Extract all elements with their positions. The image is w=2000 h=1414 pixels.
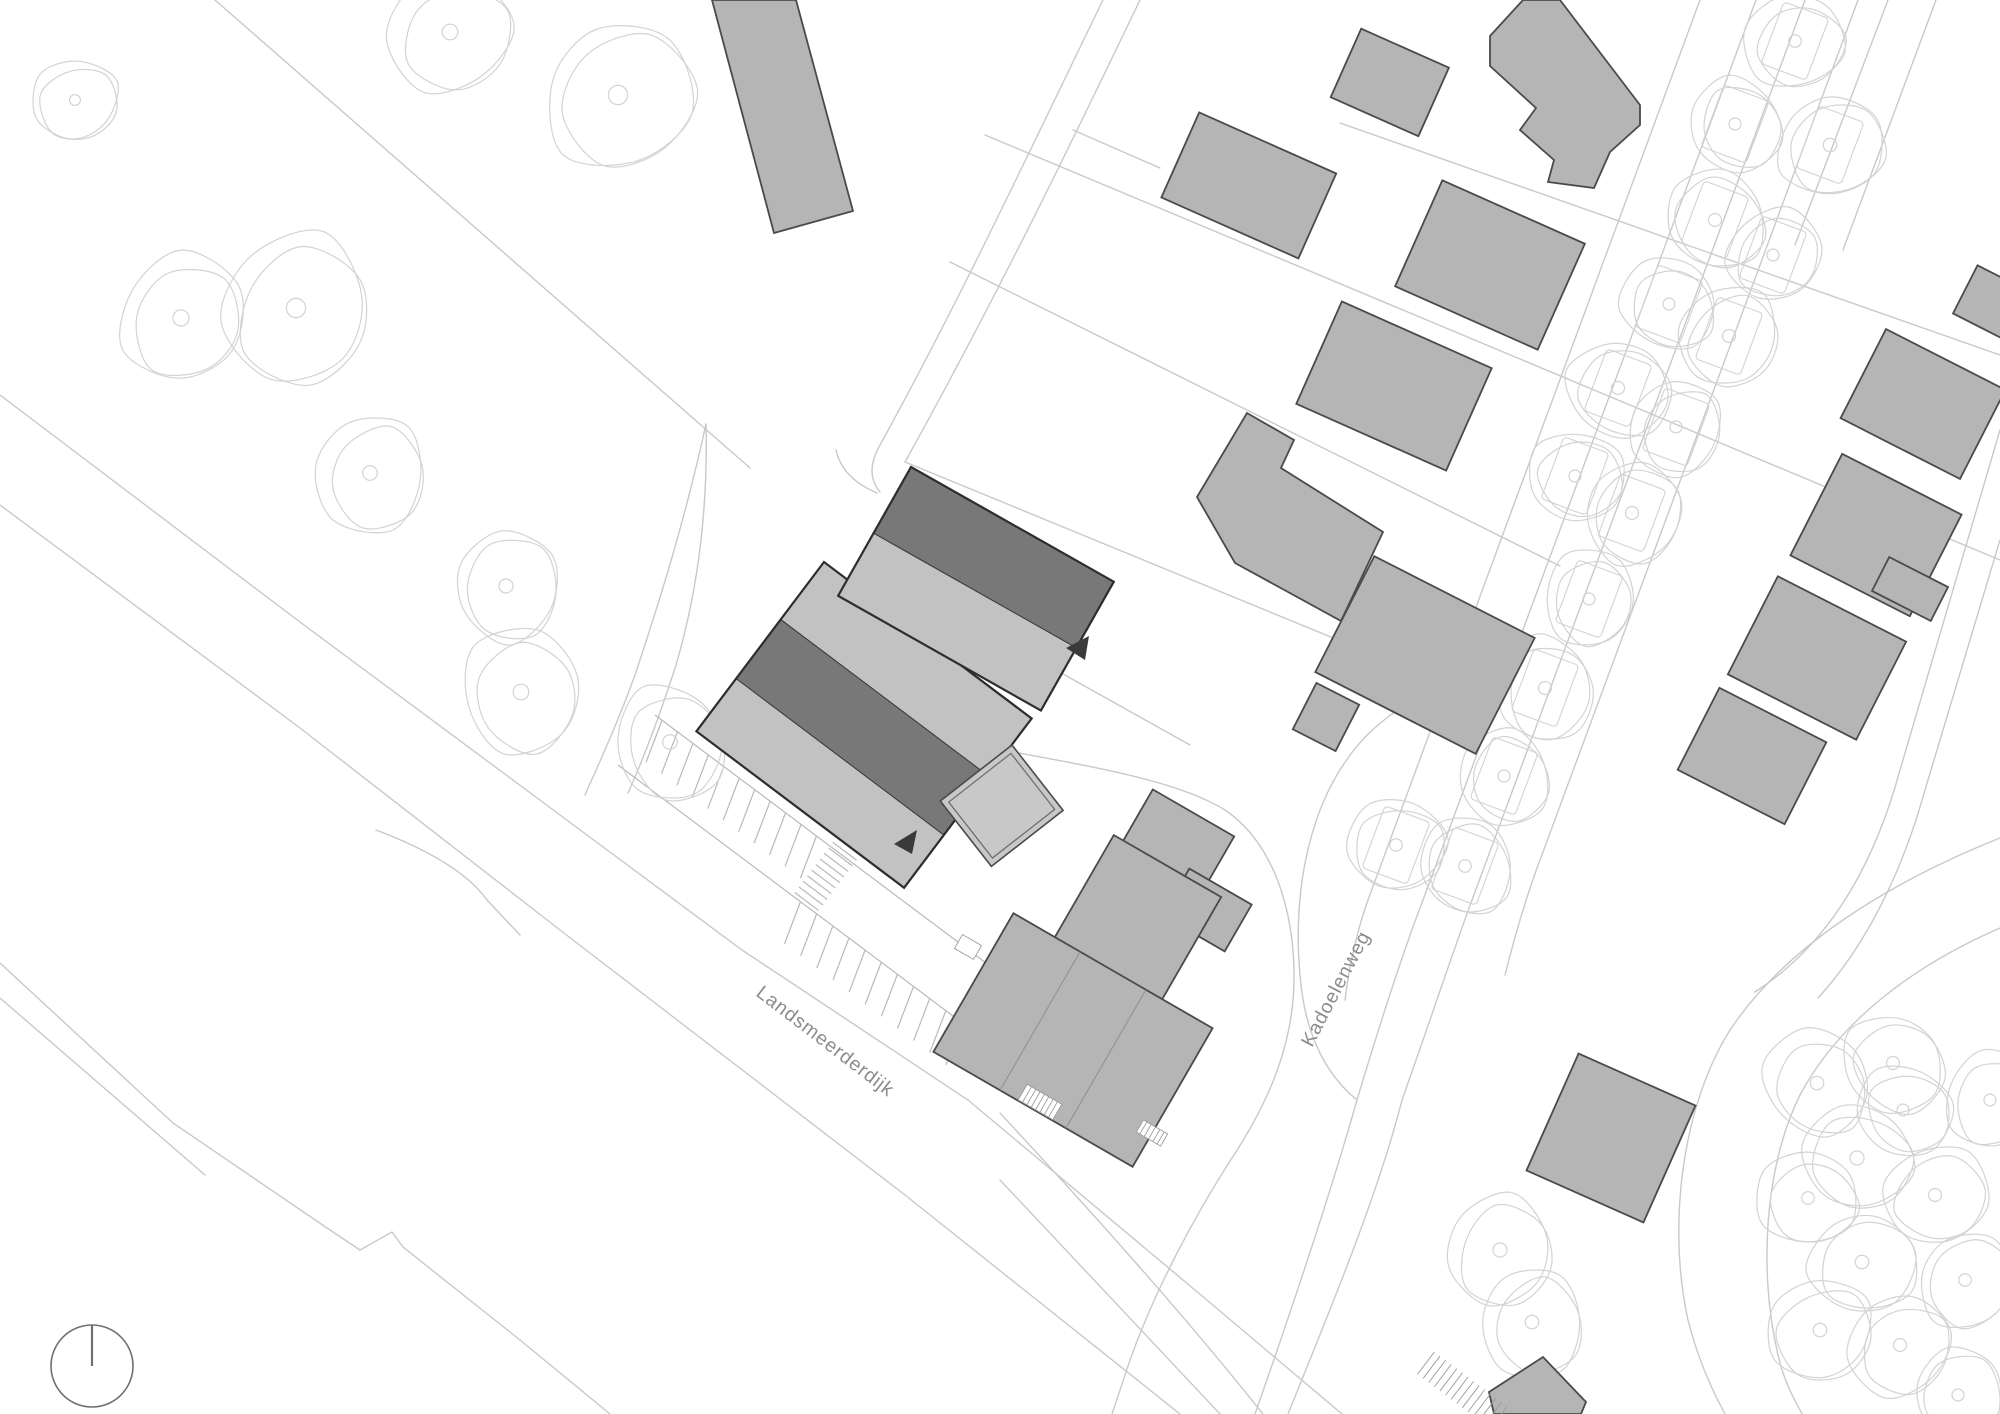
tree-canopy-icon <box>1612 382 1625 395</box>
tree-canopy-icon <box>1802 1192 1814 1204</box>
tree-canopy-icon <box>1429 824 1511 912</box>
tree-canopy-icon <box>1493 1243 1507 1257</box>
stair-hatch <box>954 935 981 960</box>
map-line <box>1795 0 1888 245</box>
hatch-stripe <box>1462 1385 1479 1407</box>
tree-canopy-icon <box>442 24 458 40</box>
tree-canopy-icon <box>1739 216 1807 295</box>
site-plan-drawing: Landsmeerderdijk Kadoelenweg <box>0 0 2000 1414</box>
parking-tick <box>849 950 865 992</box>
context-building <box>1953 265 2000 340</box>
tree-canopy-icon <box>1952 1389 1964 1401</box>
tree-canopy-icon <box>1525 1315 1539 1329</box>
parking-tick <box>914 999 930 1041</box>
tree-canopy-icon <box>221 230 363 381</box>
tree-canopy-icon <box>1704 87 1781 167</box>
stair-hatch <box>954 935 981 960</box>
crossing-stripe <box>803 881 827 899</box>
tree-canopy-icon <box>1796 106 1864 185</box>
tree-canopy-icon <box>1695 297 1763 376</box>
north-circle-icon <box>51 1325 133 1407</box>
hatch-stripe <box>1418 1352 1435 1374</box>
context-building <box>1161 112 1336 258</box>
tree-pit <box>1761 2 1829 81</box>
hatch-stripe <box>1451 1377 1468 1399</box>
map-line <box>1843 0 1936 250</box>
tree-canopy-icon <box>1813 1117 1914 1208</box>
tree-canopy-icon <box>1681 181 1749 260</box>
parking-tick <box>739 790 755 832</box>
tree-canopy-icon <box>1894 1339 1907 1352</box>
context-building <box>1527 1054 1696 1223</box>
context-building <box>1161 112 1336 258</box>
parking-tick <box>754 801 770 843</box>
context-building <box>1527 1054 1696 1223</box>
tree-canopy-icon <box>1670 421 1682 433</box>
crossing-stripe <box>820 859 844 877</box>
tree-canopy-icon <box>1583 593 1595 605</box>
map-line <box>1345 0 1700 1000</box>
crossing-stripe <box>824 853 848 871</box>
map-line <box>905 0 1140 462</box>
tree-canopy-icon <box>1555 560 1623 639</box>
tree-canopy-icon <box>1462 1204 1552 1305</box>
tree-canopy-icon <box>1757 8 1846 87</box>
parking-tick <box>677 743 693 785</box>
tree-canopy-icon <box>1557 561 1631 646</box>
parking-tick <box>801 914 817 956</box>
context-building <box>1395 180 1585 349</box>
parking-tick <box>898 986 914 1028</box>
map-line <box>836 450 877 493</box>
tree-canopy-icon <box>608 85 627 104</box>
context-building <box>1197 413 1383 621</box>
tree-pit <box>1796 106 1864 185</box>
context-building <box>712 0 853 233</box>
tree-canopy-icon <box>1767 249 1779 261</box>
street-label-kadoelenweg: Kadoelenweg <box>1297 928 1375 1051</box>
map-line <box>0 998 205 1175</box>
tree-pit <box>1541 437 1609 516</box>
hatch-stripe <box>1423 1356 1440 1378</box>
context-building <box>1296 301 1491 470</box>
project-buildings <box>696 467 1113 888</box>
tree-canopy-icon <box>1530 434 1625 520</box>
tree-canopy-icon <box>1813 1323 1827 1337</box>
tree-canopy-icon <box>1791 105 1886 193</box>
tree-canopy-icon <box>363 466 378 481</box>
tree-canopy-icon <box>550 26 694 166</box>
tree-canopy-icon <box>1390 839 1402 851</box>
map-line <box>1047 665 1190 745</box>
map-line <box>1767 928 2000 1414</box>
parking-tick <box>785 824 801 866</box>
parking-tick <box>881 974 897 1016</box>
crossing-stripe <box>812 870 836 888</box>
context-building <box>1490 0 1640 188</box>
tree-canopy-icon <box>1498 770 1510 782</box>
tree-canopy-icon <box>1929 1189 1942 1202</box>
parking-tick <box>770 813 786 855</box>
tree-canopy-icon <box>406 0 511 90</box>
tree-pit <box>1695 297 1763 376</box>
context-building <box>1293 683 1359 751</box>
tree-canopy-icon <box>1855 1255 1869 1269</box>
tree-canopy-icon <box>513 684 529 700</box>
tree-canopy-icon <box>1598 474 1666 553</box>
crossing-stripe <box>816 865 840 883</box>
tree-canopy-icon <box>1709 214 1722 227</box>
tree-canopy-icon <box>1596 470 1680 564</box>
tree-canopy-icon <box>1823 138 1837 152</box>
tree-pit <box>1681 181 1749 260</box>
hatch-stripe <box>1457 1381 1474 1403</box>
crossing-stripe <box>799 887 823 905</box>
tree-canopy-icon <box>499 579 513 593</box>
tree-canopy-icon <box>1789 35 1801 47</box>
tree-canopy-icon <box>70 95 81 106</box>
map-line <box>215 0 750 468</box>
tree-canopy-icon <box>332 426 423 529</box>
tree-pit <box>1598 474 1666 553</box>
hatch-stripe <box>1468 1390 1485 1412</box>
tree-canopy-icon <box>1883 1147 1989 1242</box>
tree-canopy-icon <box>1626 507 1639 520</box>
hatch-stripe <box>1446 1373 1463 1395</box>
tree-canopy-icon <box>173 310 189 326</box>
context-building <box>1841 329 2000 479</box>
tree-canopy-icon <box>663 735 678 750</box>
parking-tick <box>785 902 801 944</box>
context-building <box>1489 1357 1586 1414</box>
tree-canopy-icon <box>1663 298 1675 310</box>
tree-canopy-icon <box>1810 1076 1824 1090</box>
crossing-stripe <box>807 876 831 894</box>
site-plan-canvas: Landsmeerderdijk Kadoelenweg <box>0 0 2000 1414</box>
tree-canopy-icon <box>1887 1057 1900 1070</box>
map-line <box>872 0 1103 492</box>
tree-canopy-icon <box>465 628 578 754</box>
hatch-stripe <box>1429 1360 1446 1382</box>
tree-canopy-icon <box>1984 1094 1996 1106</box>
parking-tick <box>865 962 881 1004</box>
tree-canopy-icon <box>1725 207 1822 300</box>
parking-tick <box>817 926 833 968</box>
hatch-stripe <box>1434 1364 1451 1386</box>
crossing-stripe <box>828 848 852 866</box>
tree-canopy-icon <box>120 250 244 378</box>
context-building <box>1953 265 2000 340</box>
context-building <box>1293 683 1359 751</box>
context-building <box>1841 329 2000 479</box>
context-building <box>1395 180 1585 349</box>
tree-canopy-icon <box>286 298 305 317</box>
tree-canopy-icon <box>562 34 698 168</box>
context-building <box>1331 29 1449 137</box>
tree-canopy-icon <box>1541 437 1609 516</box>
tree-canopy-icon <box>1924 1356 2000 1414</box>
context-building <box>1331 29 1449 137</box>
parking-tick <box>833 938 849 980</box>
context-building <box>1296 301 1491 470</box>
tree-canopy-icon <box>1778 97 1882 194</box>
tree-canopy-icon <box>1431 827 1499 906</box>
tree-canopy-icon <box>1447 1192 1547 1306</box>
hatch-stripe <box>1474 1394 1491 1414</box>
tree-canopy-icon <box>240 247 366 386</box>
street-label-landsmeerderdijk: Landsmeerderdijk <box>752 982 899 1102</box>
tree-pit <box>1555 560 1623 639</box>
tree-canopy-icon <box>1959 1274 1971 1286</box>
tree-canopy-icon <box>1539 682 1552 695</box>
tree-canopy-icon <box>1757 1152 1856 1242</box>
map-line <box>628 424 706 793</box>
tree-pit <box>1431 827 1499 906</box>
tree-canopy-icon <box>1894 1156 1986 1239</box>
tree-pit <box>1739 216 1807 295</box>
tree-canopy-icon <box>1761 2 1829 81</box>
tree-canopy-icon <box>1864 1310 1949 1395</box>
tree-canopy-icon <box>1474 736 1550 821</box>
parking-tick <box>723 778 739 820</box>
tree-canopy-icon <box>1850 1151 1864 1165</box>
map-line <box>1073 130 1160 168</box>
tree-canopy-icon <box>1729 118 1741 130</box>
parking-tick <box>646 720 662 762</box>
hatch-stripe <box>1440 1369 1457 1391</box>
tree-canopy-icon <box>1459 860 1471 872</box>
